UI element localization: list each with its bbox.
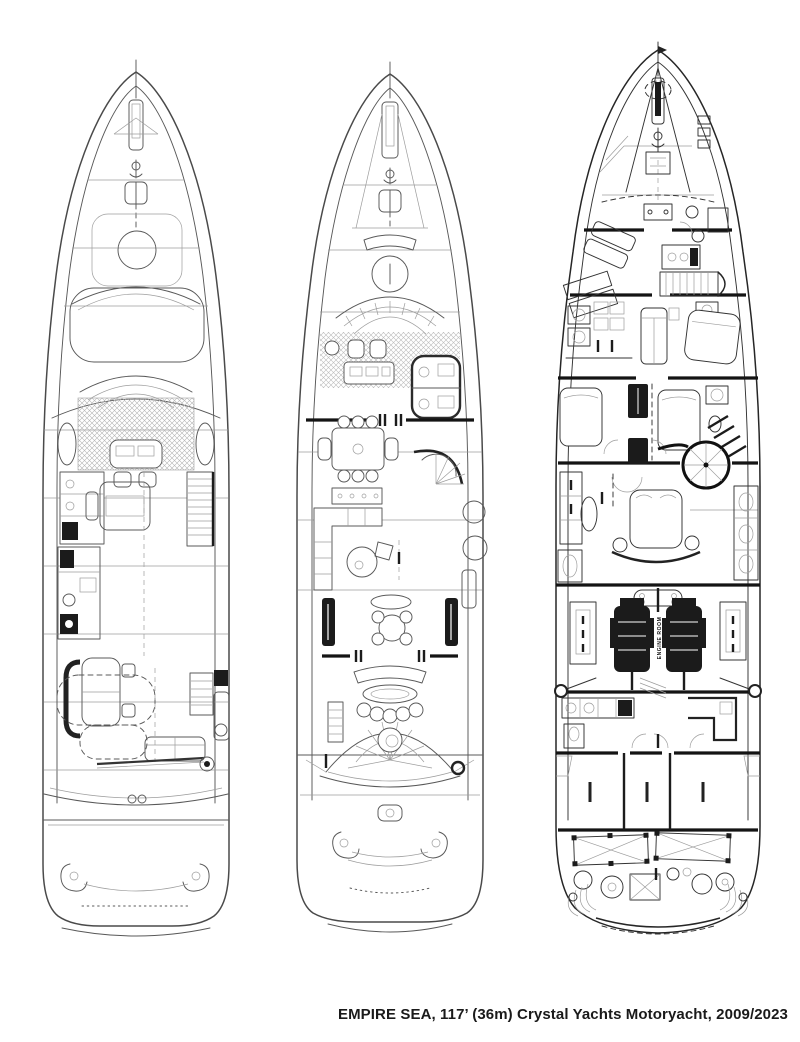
engine-room: ENGINE ROOM bbox=[555, 588, 761, 698]
lower-deck-plan: ENGINE ROOM bbox=[540, 40, 768, 948]
stern-stairs-platform bbox=[568, 884, 748, 934]
lazarette bbox=[571, 831, 734, 900]
stairs-flybridge bbox=[187, 472, 213, 546]
aft-crew-cabins bbox=[556, 753, 760, 830]
aft-deck bbox=[354, 666, 426, 723]
main-deck-plan bbox=[286, 60, 498, 940]
transom-platform bbox=[320, 772, 460, 932]
flybridge-bar bbox=[60, 472, 104, 544]
engine-room-label: ENGINE ROOM bbox=[657, 617, 663, 660]
aft-salon bbox=[322, 595, 458, 662]
crew-mess bbox=[562, 698, 736, 748]
master-stateroom bbox=[558, 472, 758, 582]
dining-area bbox=[318, 416, 398, 504]
pilothouse bbox=[306, 332, 474, 426]
bow-gear bbox=[600, 68, 710, 192]
anchor-windlass bbox=[114, 100, 158, 230]
flybridge-deck-plan bbox=[22, 58, 248, 943]
anchor-windlass bbox=[352, 102, 428, 230]
caption: EMPIRE SEA, 117’ (36m) Crystal Yachts Mo… bbox=[338, 1006, 788, 1023]
transom-platform bbox=[44, 788, 228, 936]
crew-quarters bbox=[563, 195, 728, 318]
spiral-staircase bbox=[414, 451, 487, 608]
foredeck-seat bbox=[364, 235, 416, 292]
windshield-fan bbox=[336, 297, 444, 334]
foredeck-seating bbox=[70, 214, 204, 362]
blueprint-sheet: ENGINE ROOM bbox=[0, 0, 800, 1042]
